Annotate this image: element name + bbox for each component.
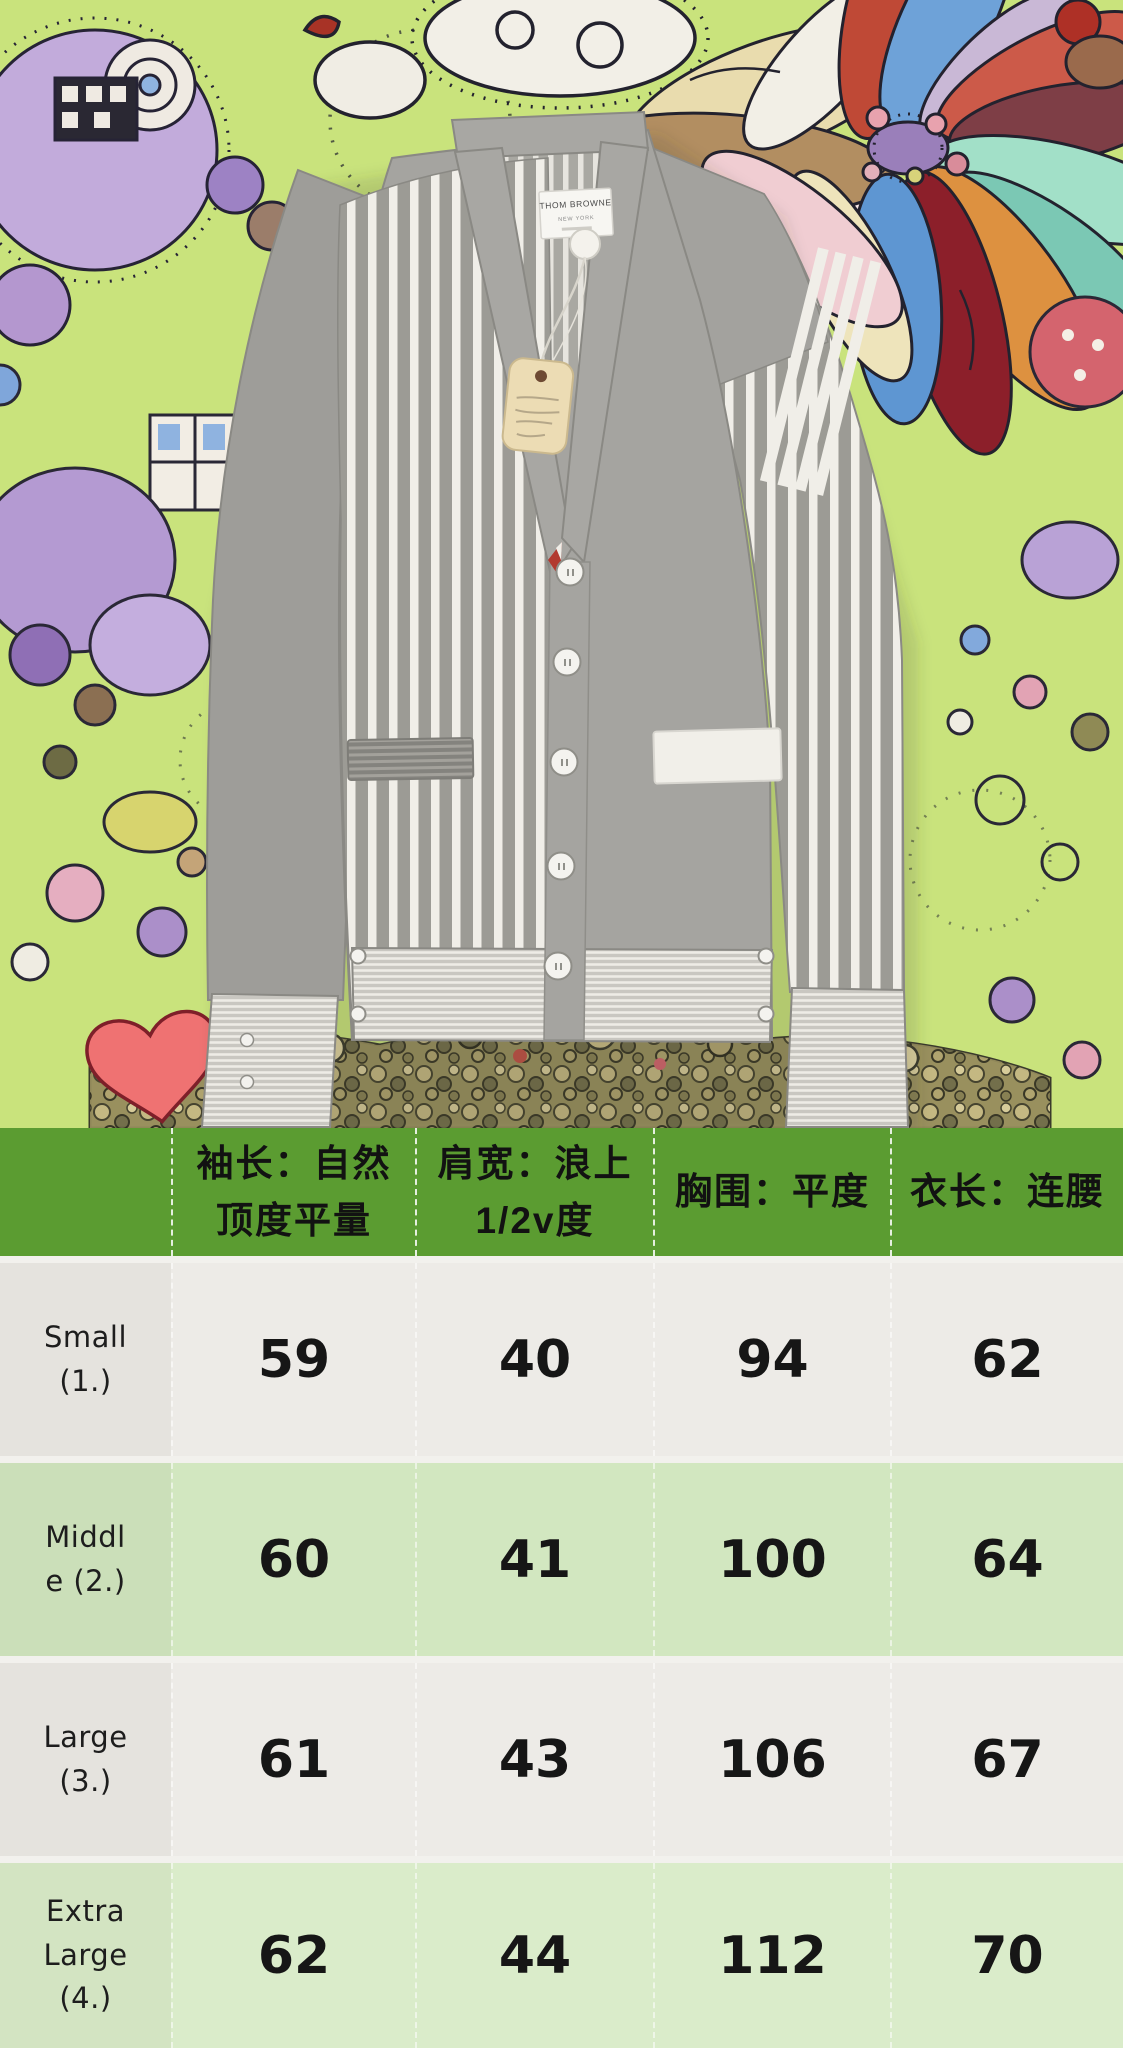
size-chart-header-row: 袖长：自然 顶度平量 肩宽：浪上 1/2v度 胸围：平度 衣长：连腰 bbox=[0, 1128, 1123, 1256]
product-listing-image: THOM BROWNE NEW YORK bbox=[0, 0, 1123, 2048]
header-cell-chest: 胸围：平度 bbox=[653, 1128, 890, 1256]
size-label: Middl e (2.) bbox=[0, 1463, 171, 1656]
right-pocket-white-welt bbox=[653, 728, 781, 783]
size-row-middle: Middl e (2.) 60 41 100 64 bbox=[0, 1463, 1123, 1656]
size-chart-table: 袖长：自然 顶度平量 肩宽：浪上 1/2v度 胸围：平度 衣长：连腰 Small… bbox=[0, 1128, 1123, 2048]
header-cell-garment-length: 衣长：连腰 bbox=[890, 1128, 1123, 1256]
size-row-large: Large (3.) 61 43 106 67 bbox=[0, 1663, 1123, 1856]
size-value-cell: 100 bbox=[653, 1463, 890, 1656]
size-value-cell: 61 bbox=[171, 1663, 415, 1856]
left-cuff bbox=[202, 994, 338, 1127]
header-cell-shoulder-width: 肩宽：浪上 1/2v度 bbox=[415, 1128, 653, 1256]
size-value-cell: 112 bbox=[653, 1863, 890, 2048]
size-value-cell: 60 bbox=[171, 1463, 415, 1656]
product-photo: THOM BROWNE NEW YORK bbox=[0, 0, 1123, 1128]
size-label: Small (1.) bbox=[0, 1263, 171, 1456]
size-value-cell: 67 bbox=[890, 1663, 1123, 1856]
size-value-cell: 59 bbox=[171, 1263, 415, 1456]
embroidered-background-and-cardigan: THOM BROWNE NEW YORK bbox=[0, 0, 1123, 1128]
size-value-cell: 41 bbox=[415, 1463, 653, 1656]
header-cell-empty bbox=[0, 1128, 171, 1256]
size-value-cell: 62 bbox=[171, 1863, 415, 2048]
size-value-cell: 40 bbox=[415, 1263, 653, 1456]
size-row-extra-large: Extra Large (4.) 62 44 112 70 bbox=[0, 1863, 1123, 2048]
size-label: Large (3.) bbox=[0, 1663, 171, 1856]
size-value-cell: 106 bbox=[653, 1663, 890, 1856]
size-value-cell: 94 bbox=[653, 1263, 890, 1456]
size-value-cell: 43 bbox=[415, 1663, 653, 1856]
size-value-cell: 44 bbox=[415, 1863, 653, 2048]
right-cuff bbox=[786, 988, 908, 1127]
left-pocket-welt bbox=[348, 738, 474, 780]
size-label: Extra Large (4.) bbox=[0, 1863, 171, 2048]
size-value-cell: 70 bbox=[890, 1863, 1123, 2048]
size-row-small: Small (1.) 59 40 94 62 bbox=[0, 1263, 1123, 1456]
size-value-cell: 64 bbox=[890, 1463, 1123, 1656]
size-value-cell: 62 bbox=[890, 1263, 1123, 1456]
header-cell-sleeve-length: 袖长：自然 顶度平量 bbox=[171, 1128, 415, 1256]
